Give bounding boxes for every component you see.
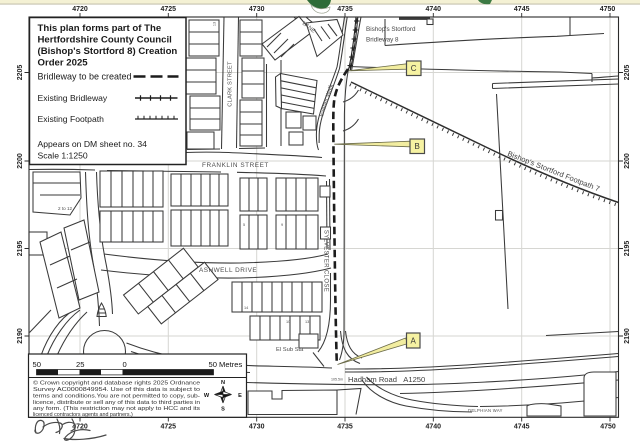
svg-text:4750: 4750	[600, 6, 616, 13]
svg-text:Bishop's Stortford: Bishop's Stortford	[366, 26, 416, 33]
svg-text:14: 14	[244, 306, 248, 310]
svg-text:4745: 4745	[514, 424, 530, 431]
svg-text:Hertfordshire County Council: Hertfordshire County Council	[38, 35, 172, 46]
svg-text:2195: 2195	[17, 241, 24, 257]
svg-text:licenced contractors agents an: licenced contractors agents and partners…	[33, 412, 133, 418]
svg-text:W: W	[204, 393, 210, 399]
svg-text:4725: 4725	[161, 424, 177, 431]
svg-text:4730: 4730	[249, 6, 265, 13]
svg-text:4735: 4735	[337, 424, 353, 431]
svg-text:2195: 2195	[624, 241, 631, 257]
svg-text:(Bishop's Stortford 8) Creatio: (Bishop's Stortford 8) Creation	[38, 46, 178, 57]
svg-text:2190: 2190	[17, 328, 24, 344]
svg-text:DELPHIAN WAY: DELPHIAN WAY	[468, 408, 503, 413]
svg-text:Bridleway 8: Bridleway 8	[366, 37, 399, 44]
svg-text:5: 5	[243, 223, 245, 227]
svg-text:4750: 4750	[600, 424, 616, 431]
svg-text:2205: 2205	[17, 65, 24, 81]
svg-text:25: 25	[76, 360, 84, 369]
svg-text:Existing Footpath: Existing Footpath	[38, 114, 105, 124]
svg-text:El Sub Sta: El Sub Sta	[276, 347, 304, 353]
svg-text:2 to 12: 2 to 12	[58, 206, 72, 211]
svg-text:105.5m: 105.5m	[331, 378, 343, 382]
svg-text:A: A	[411, 337, 417, 346]
svg-text:Appears on DM sheet no. 34: Appears on DM sheet no. 34	[38, 139, 148, 149]
svg-text:B: B	[415, 142, 420, 151]
svg-text:13: 13	[213, 22, 217, 26]
svg-text:This plan forms part of The: This plan forms part of The	[38, 23, 162, 34]
svg-text:E: E	[238, 393, 242, 399]
svg-text:Hadham Road A1250: Hadham Road A1250	[348, 375, 425, 384]
svg-text:Existing Bridleway: Existing Bridleway	[38, 93, 108, 103]
svg-text:S: S	[221, 407, 225, 413]
svg-text:CLARK STREET: CLARK STREET	[228, 61, 234, 107]
svg-text:4730: 4730	[249, 424, 265, 431]
svg-text:FRANKLIN STREET: FRANKLIN STREET	[202, 162, 269, 169]
svg-text:2200: 2200	[624, 153, 631, 169]
svg-text:50: 50	[33, 360, 41, 369]
svg-text:Survey AC0000849954. Use of th: Survey AC0000849954. Use of this data is…	[33, 387, 200, 393]
svg-text:Bridleway to be created: Bridleway to be created	[38, 72, 132, 82]
svg-text:4740: 4740	[426, 424, 442, 431]
svg-text:2205: 2205	[624, 65, 631, 81]
svg-text:© Crown copyright and database: © Crown copyright and database rights 20…	[33, 379, 200, 386]
svg-text:13: 13	[305, 320, 309, 324]
svg-text:4735: 4735	[337, 6, 353, 13]
svg-text:4725: 4725	[161, 6, 177, 13]
svg-text:C: C	[411, 64, 417, 73]
svg-text:ASHWELL DRIVE: ASHWELL DRIVE	[199, 267, 257, 274]
svg-text:licence, distribute or sell an: licence, distribute or sell any of this …	[33, 400, 200, 406]
svg-text:terms and conditions.You are n: terms and conditions.You are not permitt…	[33, 393, 200, 399]
svg-text:Order 2025: Order 2025	[38, 58, 89, 69]
svg-text:2190: 2190	[624, 328, 631, 344]
svg-text:50 Metres: 50 Metres	[209, 360, 243, 369]
svg-text:Scale 1:1250: Scale 1:1250	[38, 151, 88, 161]
svg-text:4720: 4720	[72, 6, 88, 13]
svg-text:9: 9	[281, 223, 283, 227]
svg-text:2200: 2200	[17, 153, 24, 169]
svg-text:10: 10	[286, 320, 290, 324]
svg-text:0: 0	[123, 360, 127, 369]
svg-text:SYLVESTER CLOSE: SYLVESTER CLOSE	[323, 230, 329, 292]
svg-text:4745: 4745	[514, 6, 530, 13]
svg-text:4740: 4740	[426, 6, 442, 13]
svg-text:N: N	[221, 380, 225, 386]
